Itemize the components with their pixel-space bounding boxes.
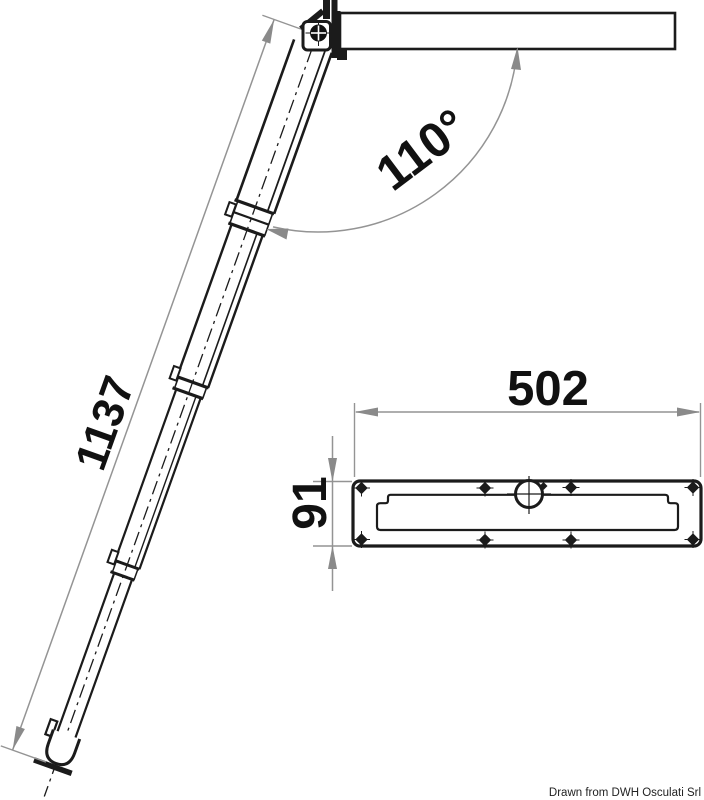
hinge-top-tab — [323, 0, 330, 19]
hinge-lower-nub — [337, 49, 347, 60]
dimension-label-91: 91 — [284, 476, 337, 529]
technical-drawing-canvas: 1137 110° — [0, 0, 704, 800]
hinge-top-tab-2 — [332, 0, 338, 12]
mounting-bar-outline — [340, 13, 675, 49]
ladder-diagram-svg: 1137 110° — [0, 0, 704, 800]
dimension-label-502: 502 — [507, 362, 589, 416]
credit-text: Drawn from DWH Osculati Srl — [549, 787, 701, 799]
mounting-bar-side-view — [340, 13, 675, 49]
